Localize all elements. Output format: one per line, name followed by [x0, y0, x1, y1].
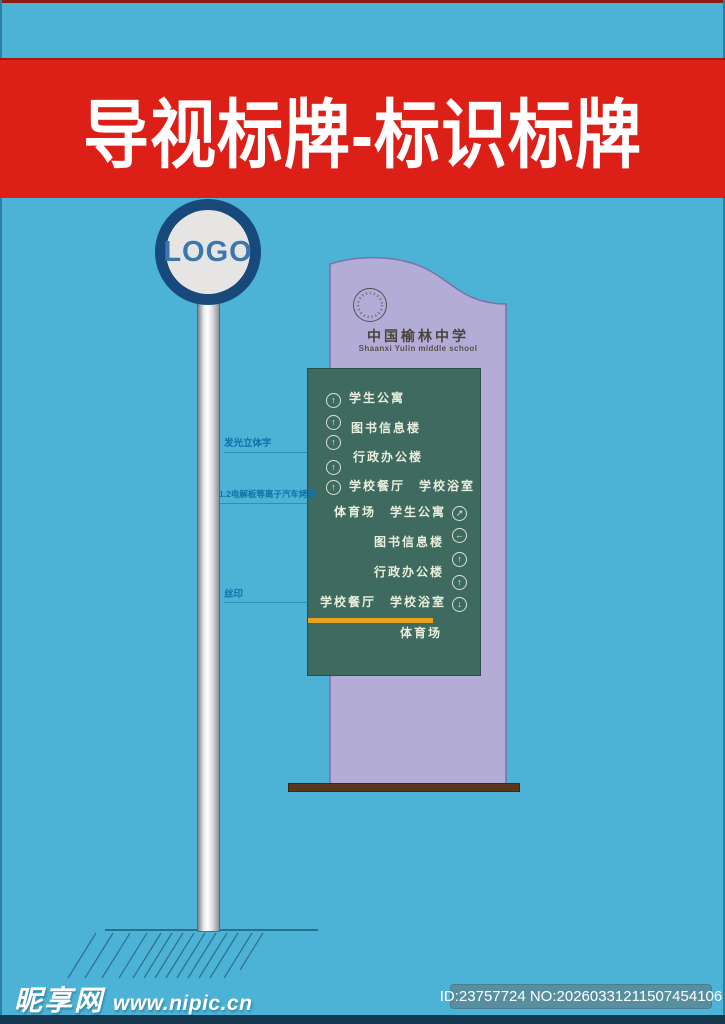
- callout-leader-line: [219, 503, 310, 504]
- callout-leader-line: [224, 452, 310, 453]
- accent-bar: [308, 618, 433, 623]
- logo-sign: LOGO: [155, 199, 261, 305]
- down-arrow-icon: ↓: [452, 597, 467, 612]
- image-id-badge: ID:23757724 NO:20260331211507454106: [450, 984, 712, 1009]
- sign-pole: [197, 300, 220, 932]
- directory-entry: 学生公寓: [349, 391, 405, 405]
- logo-label: LOGO: [163, 236, 252, 269]
- banner-title: 导视标牌-标识标牌: [83, 74, 642, 183]
- school-name-cn: 中国榆林中学: [330, 326, 506, 346]
- callout-silkscreen: 丝印: [224, 586, 243, 600]
- site-name: 昵享网: [14, 979, 104, 1019]
- directory-entry: 图书信息楼: [374, 535, 444, 549]
- site-watermark: 昵享网 www.nipic.cn: [14, 979, 252, 1019]
- directory-entry: 行政办公楼: [353, 450, 423, 464]
- image-id-text: ID:23757724 NO:20260331211507454106: [440, 988, 722, 1005]
- up-arrow-icon: ↑: [326, 415, 341, 430]
- directory-entry: 行政办公楼: [374, 565, 444, 579]
- callout-material-spec: 1.2电解板等离子汽车烤漆: [219, 488, 316, 500]
- directory-entry: 图书信息楼: [351, 421, 421, 435]
- directory-entry-stadium: 体育场: [400, 626, 442, 640]
- up-right-arrow-icon: ↗: [452, 506, 467, 521]
- up-arrow-icon: ↑: [326, 435, 341, 450]
- directory-entry: 学校餐厅 学校浴室: [320, 595, 446, 609]
- site-url: www.nipic.cn: [113, 992, 252, 1016]
- directory-panel: ↑ ↑ ↑ ↑ ↑ 学生公寓 图书信息楼 行政办公楼 学校餐厅 学校浴室 体育场…: [307, 368, 481, 676]
- up-arrow-icon: ↑: [326, 393, 341, 408]
- up-arrow-icon: ↑: [452, 552, 467, 567]
- callout-leader-line: [224, 602, 310, 603]
- directory-entry: 体育场 学生公寓: [334, 505, 446, 519]
- callout-luminous-letters: 发光立体字: [224, 435, 272, 449]
- title-banner: 导视标牌-标识标牌: [0, 58, 725, 198]
- up-arrow-icon: ↑: [326, 460, 341, 475]
- ground-hatch: [68, 933, 263, 978]
- logo-face: LOGO: [166, 210, 250, 294]
- left-arrow-icon: ←: [452, 528, 467, 543]
- signage-design-poster: 导视标牌-标识标牌 LOGO: [0, 0, 725, 1024]
- school-name-en: Shaanxi Yulin middle school: [330, 344, 506, 353]
- bottom-strip: [0, 1015, 725, 1024]
- up-arrow-icon: ↑: [326, 480, 341, 495]
- up-arrow-icon: ↑: [452, 575, 467, 590]
- sign-base: [288, 783, 520, 792]
- directory-entry: 学校餐厅 学校浴室: [349, 479, 475, 493]
